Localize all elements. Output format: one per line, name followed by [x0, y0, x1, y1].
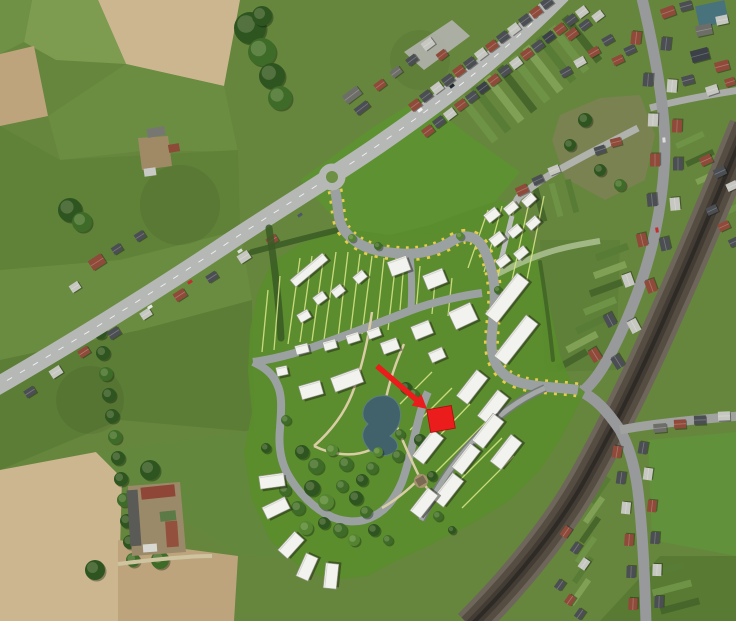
- existing-house: [694, 415, 707, 426]
- existing-house: [635, 231, 649, 247]
- existing-house: [658, 235, 672, 251]
- existing-house: [724, 76, 736, 88]
- existing-house: [652, 563, 663, 576]
- existing-house: [643, 72, 655, 87]
- existing-house: [695, 23, 714, 38]
- existing-house: [653, 423, 668, 434]
- existing-house: [714, 59, 731, 74]
- existing-house: [728, 236, 736, 249]
- existing-house: [673, 157, 684, 171]
- existing-house: [621, 501, 633, 515]
- existing-house: [611, 54, 626, 67]
- existing-house: [626, 565, 637, 578]
- highlighted-parcel: [427, 406, 456, 433]
- existing-house: [630, 30, 643, 45]
- existing-house: [578, 18, 593, 33]
- existing-house: [342, 85, 364, 105]
- existing-house: [554, 578, 568, 592]
- existing-house: [660, 36, 673, 51]
- planned-building: [323, 561, 341, 589]
- existing-house: [601, 33, 616, 47]
- existing-house: [660, 5, 678, 21]
- existing-house: [654, 595, 665, 608]
- existing-house: [648, 112, 660, 126]
- existing-house: [647, 499, 659, 513]
- existing-house: [650, 153, 661, 167]
- existing-house: [718, 411, 731, 422]
- existing-house: [672, 118, 684, 132]
- existing-house: [574, 607, 588, 621]
- existing-house: [354, 100, 372, 117]
- aerial-map-canvas: [0, 0, 736, 621]
- existing-house: [628, 597, 639, 610]
- aerial-site-plan: [0, 0, 736, 621]
- existing-house: [690, 47, 712, 65]
- existing-house: [616, 470, 628, 484]
- existing-house: [638, 440, 650, 455]
- existing-house: [679, 0, 694, 13]
- existing-house: [681, 74, 696, 87]
- existing-house: [650, 531, 661, 545]
- existing-house: [667, 78, 679, 93]
- existing-house: [643, 466, 655, 480]
- existing-house: [674, 419, 688, 430]
- existing-house: [591, 9, 606, 24]
- existing-house: [669, 196, 681, 211]
- existing-house: [624, 533, 635, 547]
- existing-house: [373, 78, 388, 93]
- existing-house: [623, 44, 638, 57]
- existing-house: [646, 192, 658, 207]
